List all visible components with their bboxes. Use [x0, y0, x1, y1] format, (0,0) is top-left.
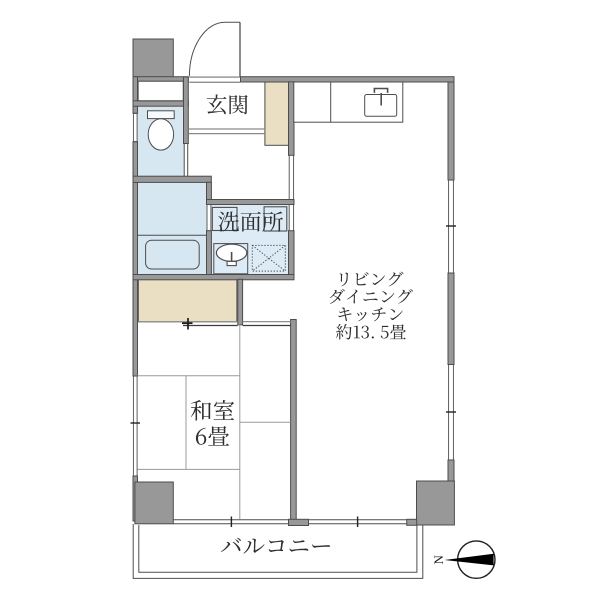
svg-text:N: N [431, 554, 446, 564]
